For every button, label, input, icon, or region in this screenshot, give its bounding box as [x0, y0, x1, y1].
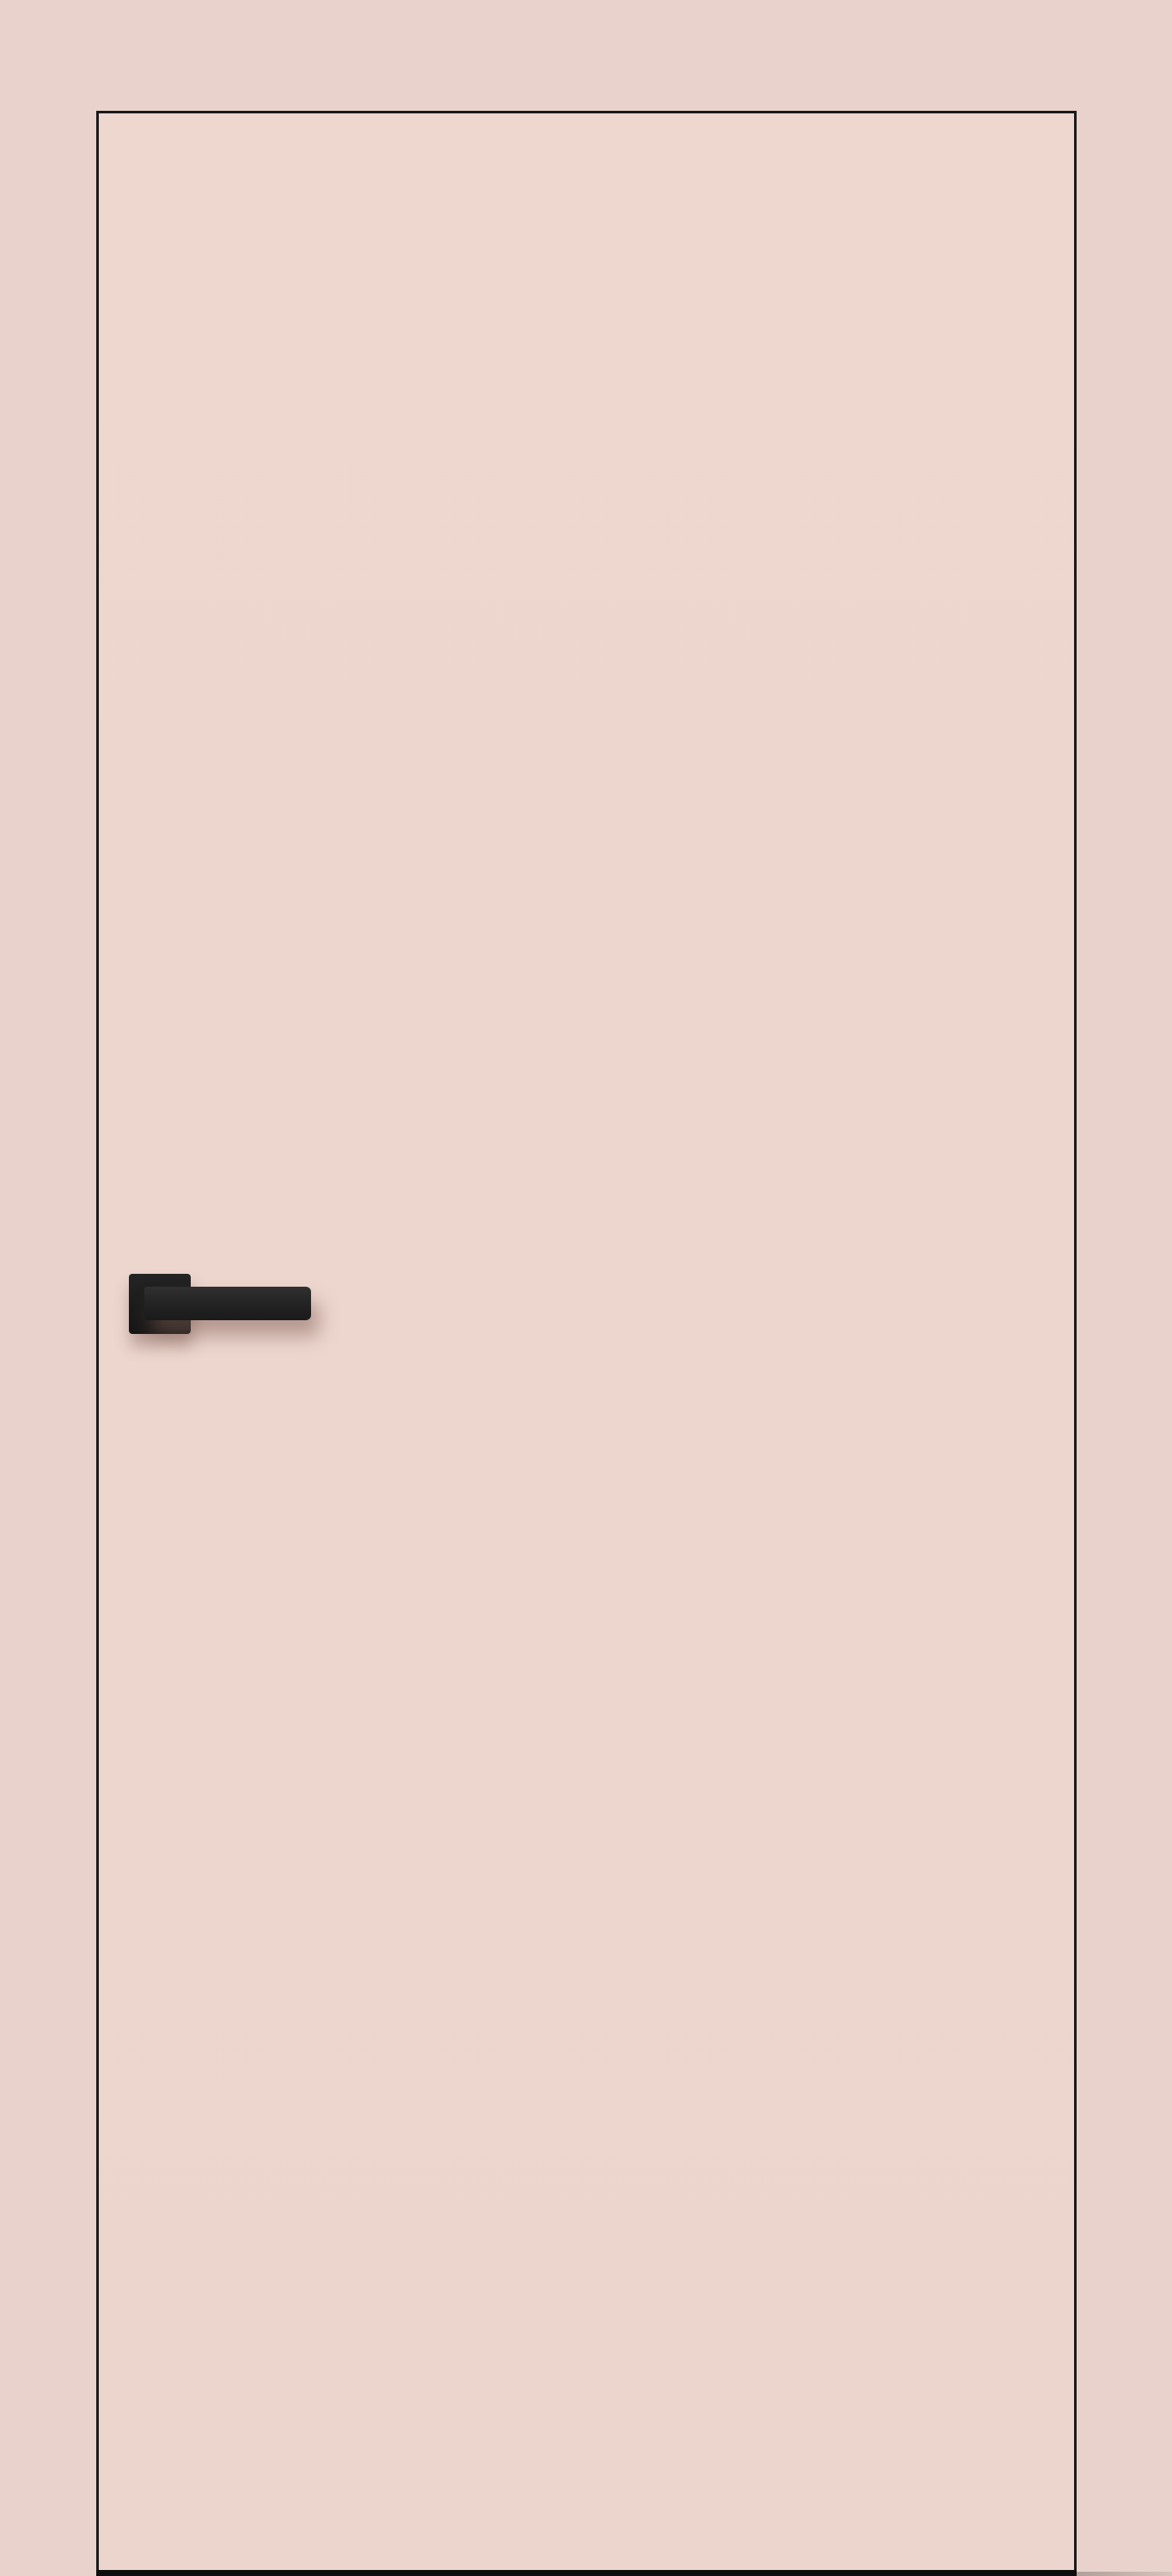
floor-shadow-line [1077, 2572, 1172, 2576]
product-image-canvas [0, 0, 1172, 2576]
handle-lever [144, 1287, 311, 1320]
door-threshold-bar [96, 2570, 1077, 2576]
door-leaf [96, 111, 1077, 2576]
door-face [99, 113, 1074, 2576]
